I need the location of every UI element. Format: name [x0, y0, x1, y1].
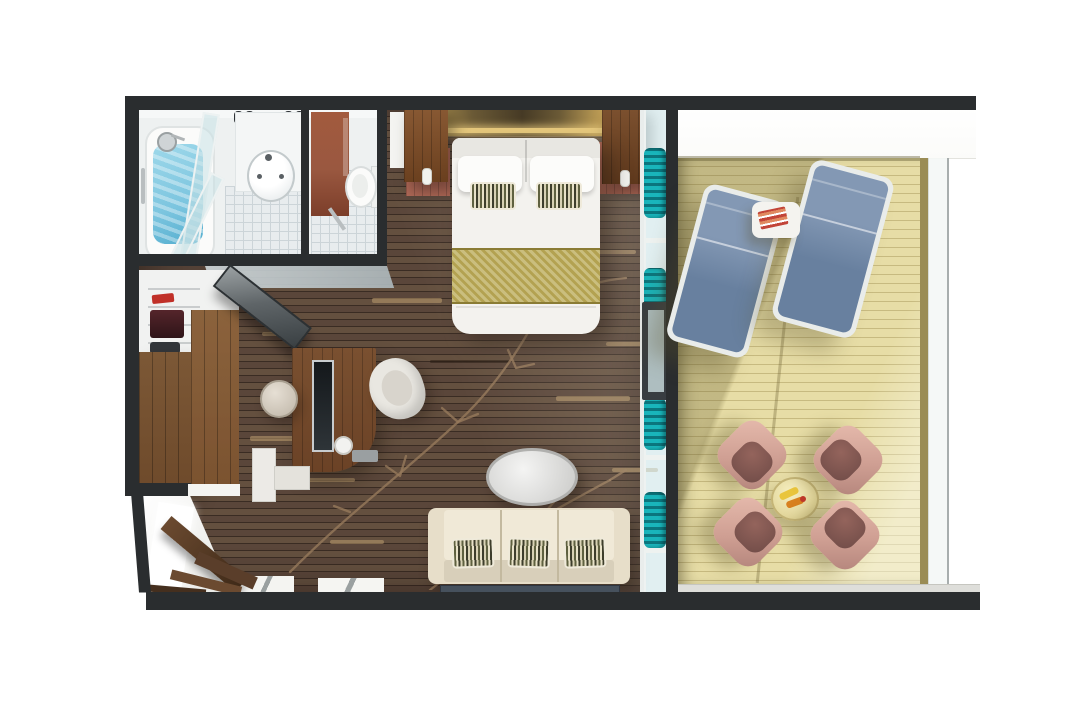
partition-wall: [666, 110, 678, 592]
sofa-seam: [500, 510, 502, 582]
teal-curtain: [644, 398, 666, 450]
accent-pillow-right: [536, 182, 582, 210]
wall-sliver: [390, 112, 404, 168]
outer-wall-left: [125, 96, 139, 492]
desk-cup: [334, 436, 353, 455]
bed-runner: [452, 248, 600, 304]
drawer-unit: [252, 448, 276, 502]
wardrobe-cabinet-right: [191, 310, 239, 484]
oval-coffee-table: [486, 448, 578, 506]
glass-mullion: [644, 455, 666, 460]
headboard-light-strip: [424, 128, 602, 133]
wc-divider-wall: [301, 110, 309, 256]
duvet-fold: [456, 306, 596, 308]
overhang-shadow: [678, 156, 920, 161]
lamp-pull-right: [620, 170, 630, 187]
desk-tray: [352, 450, 378, 462]
shelf-board: [148, 288, 200, 290]
balcony-door-glass: [648, 310, 664, 392]
faucet-handle: [257, 174, 262, 179]
stool: [260, 380, 298, 418]
floorplan-stage: [0, 0, 1067, 711]
drawer-unit-2: [274, 466, 310, 490]
bed-center-seam: [525, 140, 527, 182]
faucet-handle: [279, 174, 284, 179]
entry-wall-cap-face: [188, 484, 240, 496]
desk-mirror: [312, 360, 334, 452]
drink-cap: [800, 496, 806, 502]
teal-curtain: [644, 492, 666, 548]
outer-wall-top: [125, 96, 976, 110]
deck-edge: [920, 158, 928, 584]
accent-pillow-left: [470, 182, 516, 210]
wardrobe-cabinet-left: [139, 352, 191, 490]
sofa-seam: [557, 510, 559, 582]
teal-curtain: [644, 148, 666, 218]
lamp-pull-left: [422, 168, 432, 185]
sofa-pillow: [507, 537, 550, 568]
bathroom: [139, 110, 387, 256]
hanging-clothes-dark: [150, 310, 184, 338]
shelf-board: [148, 306, 200, 308]
glass-mullion: [644, 548, 666, 553]
bathroom-right-wall: [377, 110, 387, 262]
toilet-seat: [352, 174, 368, 198]
sofa-pillow: [451, 537, 494, 568]
sofa-pillow: [563, 537, 606, 568]
glass-railing: [928, 158, 949, 584]
faucet: [265, 154, 272, 161]
glass-mullion: [644, 238, 666, 243]
balcony-overhang: [678, 108, 976, 159]
wc-glass-shelf: [343, 118, 348, 176]
grab-bar: [141, 168, 145, 204]
bathroom-bottom-wall: [125, 254, 387, 266]
outer-wall-bottom: [146, 592, 980, 610]
